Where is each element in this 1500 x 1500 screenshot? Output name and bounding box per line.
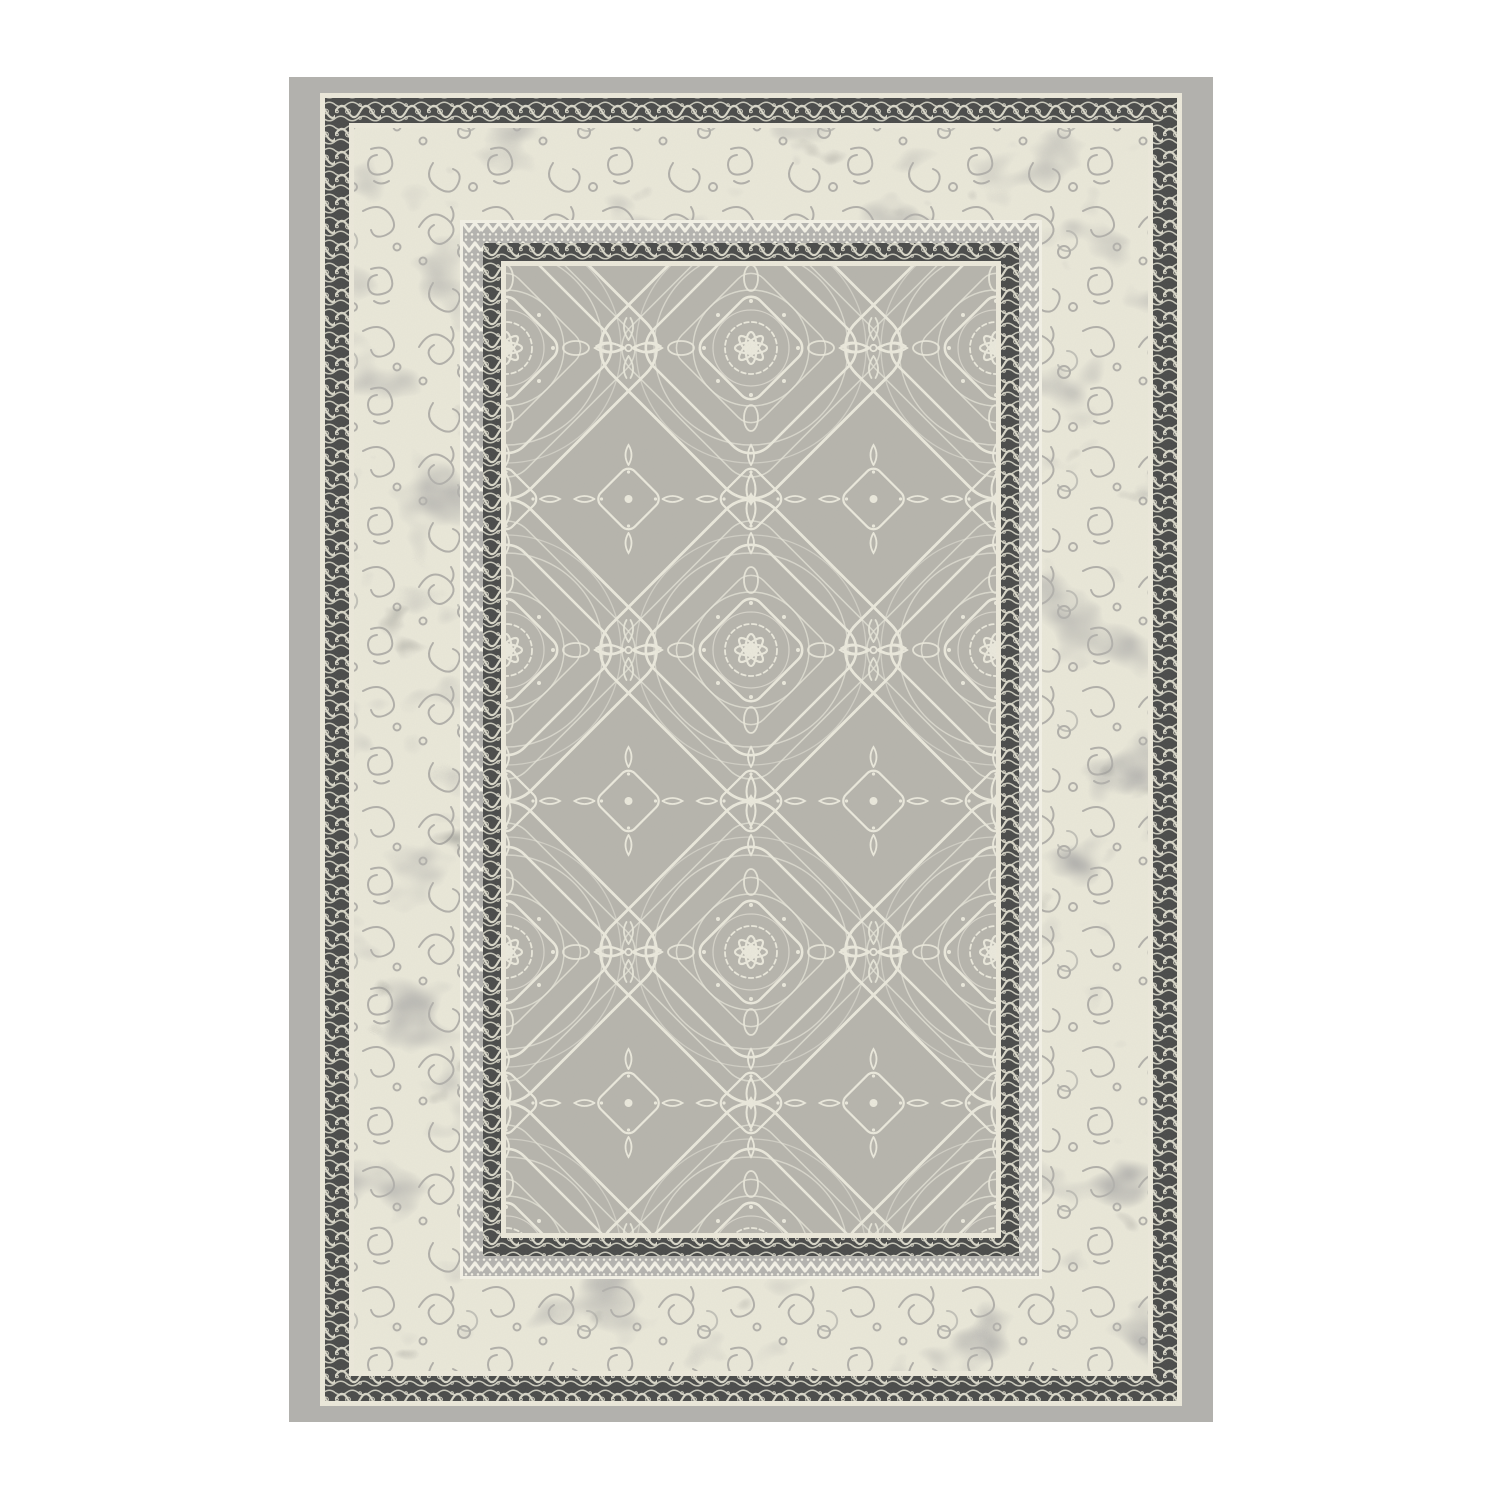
rug-graphic bbox=[289, 77, 1213, 1422]
rug bbox=[289, 77, 1213, 1422]
rug-fabric-texture bbox=[289, 77, 1213, 1422]
product-photo-background bbox=[0, 0, 1500, 1500]
